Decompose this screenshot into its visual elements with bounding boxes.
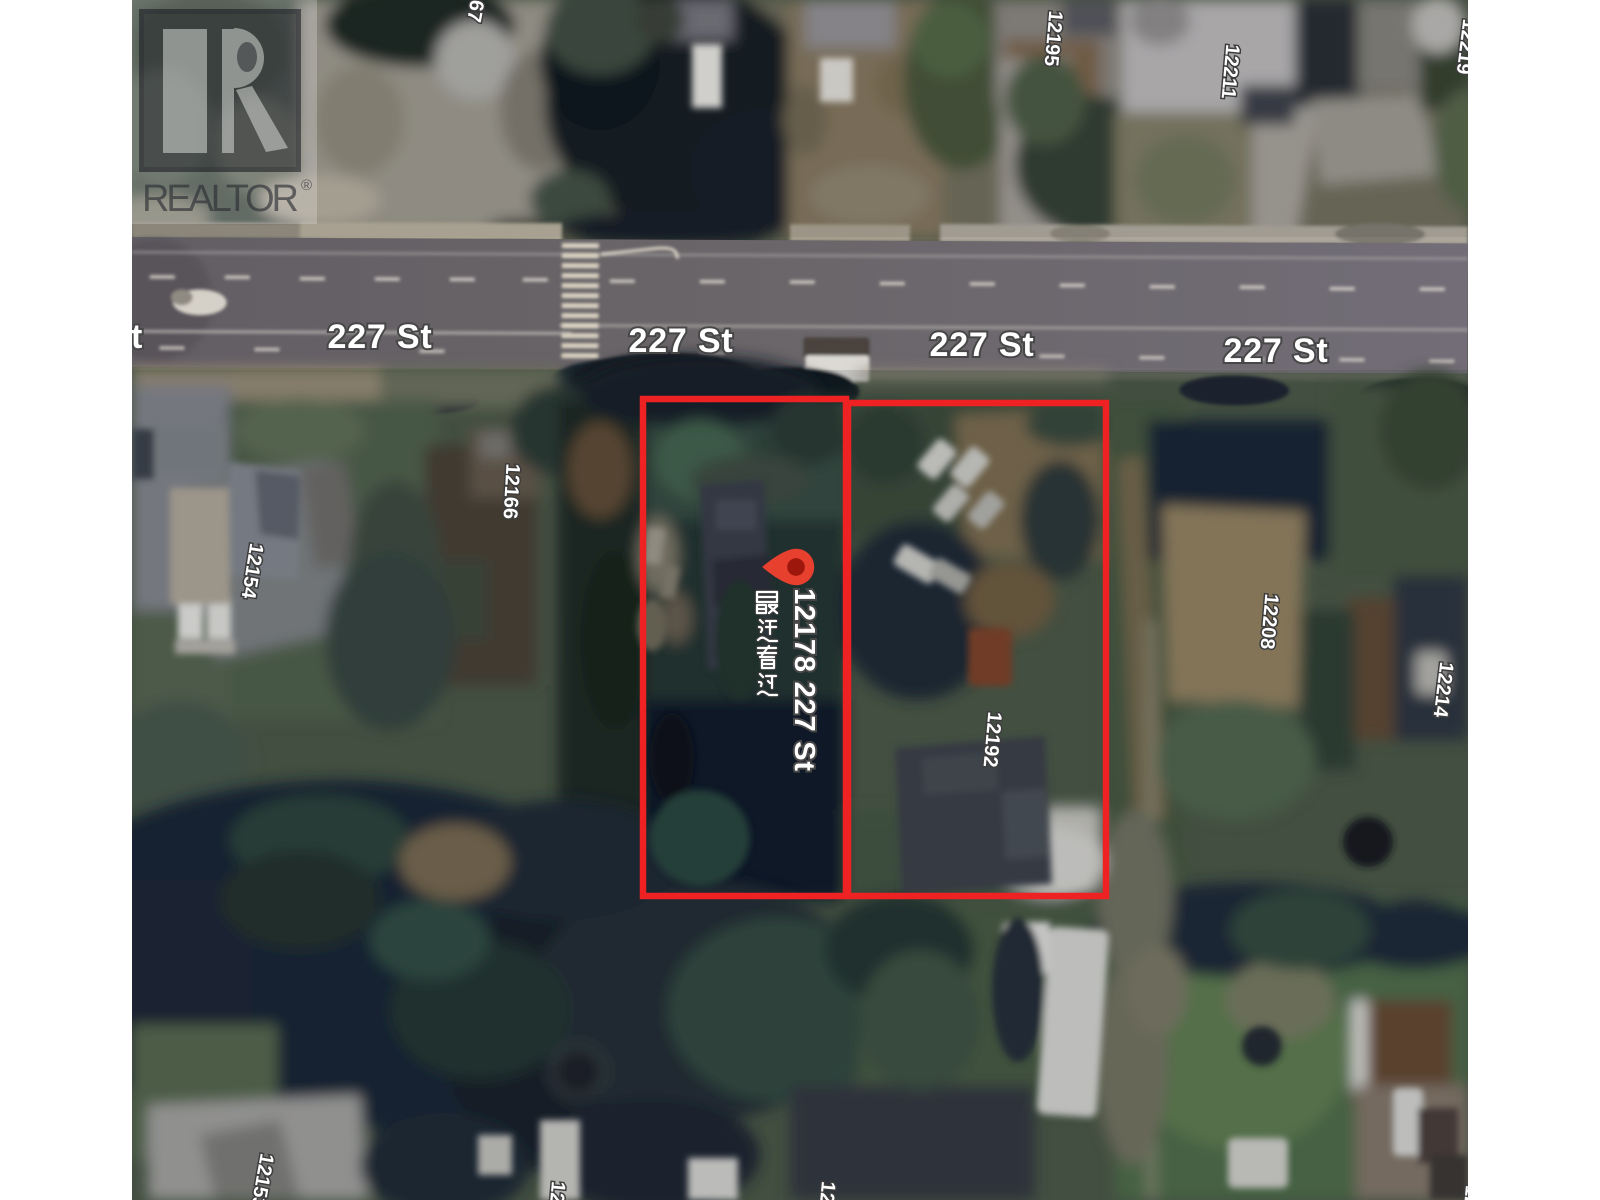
svg-text:12166: 12166 <box>499 463 524 520</box>
svg-text:227 St: 227 St <box>328 318 433 356</box>
svg-text:12: 12 <box>545 1180 569 1200</box>
svg-text:67: 67 <box>462 0 488 24</box>
svg-text:t: t <box>132 318 143 356</box>
svg-text:12178 227 St: 12178 227 St <box>788 588 820 772</box>
svg-text:REALTOR: REALTOR <box>142 178 299 220</box>
svg-text:227 St: 227 St <box>629 322 734 360</box>
svg-text:227 St: 227 St <box>1224 332 1329 370</box>
svg-text:227 St: 227 St <box>930 326 1035 364</box>
svg-text:®: ® <box>301 177 312 194</box>
svg-text:12: 12 <box>815 1180 839 1200</box>
